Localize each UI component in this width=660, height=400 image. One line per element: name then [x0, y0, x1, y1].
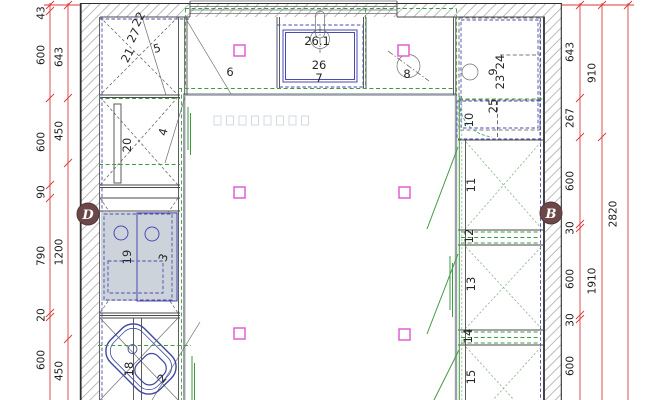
dim-label: 643 [565, 42, 577, 62]
dim-label: 600 [565, 269, 577, 289]
dim-label: 1910 [587, 268, 599, 295]
dim-label: 1200 [54, 239, 66, 266]
ceiling-spot-icon [399, 329, 410, 340]
dim-label: 267 [565, 108, 577, 128]
item-label-21: 21 [118, 45, 137, 64]
dim-label: 30 [565, 313, 577, 326]
item-label-23: 23 [493, 75, 507, 90]
counter-edges [183, 94, 457, 400]
section-marker-b: B [540, 202, 562, 224]
dim-label: 600 [36, 132, 48, 152]
dim-label: 643 [54, 47, 66, 67]
floor-plan-svg: 43 600 600 90 790 20 600 643 450 1200 45… [0, 0, 660, 400]
dim-label: 2820 [608, 201, 620, 228]
cabinets-left [100, 17, 231, 400]
drawing-canvas: 43 600 600 90 790 20 600 643 450 1200 45… [0, 0, 660, 400]
item-label-19: 19 [120, 250, 134, 265]
item-label-18: 18 [122, 362, 136, 377]
section-marker-d: D [77, 203, 99, 225]
dim-label: 30 [565, 221, 577, 234]
item-label-4: 4 [155, 127, 170, 138]
section-marker-b-label: B [545, 207, 557, 222]
radiator [214, 116, 309, 125]
item-label-2: 2 [154, 371, 169, 386]
knob-icon [462, 64, 478, 80]
dim-label: 600 [36, 45, 48, 65]
item-label-26-1: 26.1 [304, 34, 330, 48]
item-label-24: 24 [493, 55, 507, 70]
ceiling-spots [234, 45, 410, 340]
item-label-6: 6 [226, 65, 233, 79]
door-swing-line [427, 147, 458, 229]
dim-label: 600 [565, 356, 577, 376]
item-label-20: 20 [120, 138, 134, 153]
dim-label: 600 [565, 171, 577, 191]
dimension-labels: 43 600 600 90 790 20 600 643 450 1200 45… [36, 6, 620, 381]
dim-label: 450 [54, 121, 66, 141]
dim-label: 790 [36, 246, 48, 266]
ceiling-spot-icon [234, 187, 245, 198]
door-swing-line [427, 254, 458, 334]
dim-label: 20 [36, 308, 48, 321]
ceiling-spot-icon [234, 45, 245, 56]
section-marker-d-label: D [81, 208, 94, 223]
dim-label: 910 [587, 63, 599, 83]
item-label-25: 25 [486, 99, 500, 114]
dim-label: 450 [54, 361, 66, 381]
item-label-14: 14 [461, 329, 475, 344]
ceiling-spot-icon [398, 45, 409, 56]
item-label-26: 26 [312, 58, 327, 72]
item-label-10: 10 [462, 113, 476, 128]
dim-label: 600 [36, 350, 48, 370]
ceiling-spot-icon [399, 187, 410, 198]
dim-label: 43 [36, 6, 48, 19]
dim-label: 90 [36, 185, 48, 198]
item-label-12: 12 [462, 229, 476, 244]
item-label-8: 8 [403, 67, 410, 81]
item-label-11: 11 [464, 178, 478, 193]
item-label-15: 15 [464, 370, 478, 385]
item-label-13: 13 [464, 277, 478, 292]
ceiling-spot-icon [234, 328, 245, 339]
item-label-7: 7 [315, 71, 322, 85]
drain-icon [126, 343, 139, 356]
